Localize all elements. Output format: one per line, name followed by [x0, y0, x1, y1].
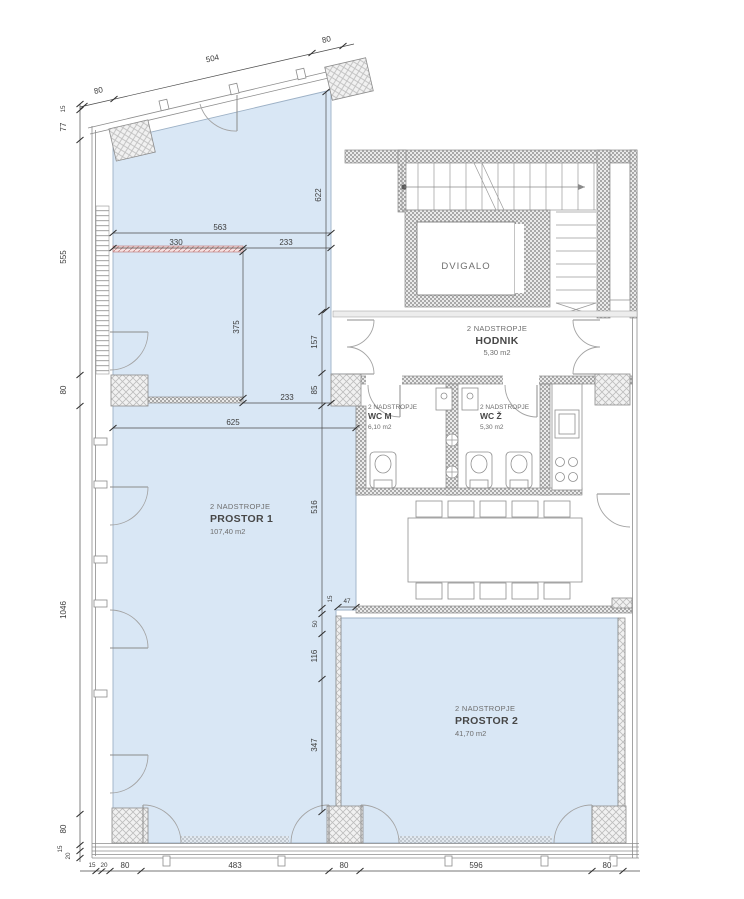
prostor2-name: PROSTOR 2 — [455, 715, 518, 727]
dim-625: 625 — [226, 418, 240, 427]
prostor2-floor: 2 NADSTROPJE — [455, 704, 515, 713]
dim-left-20: 20 — [65, 852, 72, 860]
left-wall-insulation — [96, 206, 109, 374]
wc-m-left-wall — [356, 406, 366, 495]
dim-top-80-right: 80 — [321, 34, 332, 45]
stairwell: DVIGALO — [333, 150, 637, 318]
prostor-divider-wall — [336, 616, 341, 808]
dim-left-15: 15 — [60, 105, 67, 113]
outer-right-wall-segment — [630, 150, 637, 318]
label-hodnik: 2 NADSTROPJE HODNIK 5,30 m2 — [467, 324, 527, 357]
dim-left-80b: 80 — [59, 824, 68, 833]
elevator: DVIGALO — [405, 210, 550, 307]
dim-116: 116 — [310, 649, 319, 662]
floor-plan-page: DVIGALO — [0, 0, 744, 899]
stair-right-wall — [597, 150, 610, 318]
dim-left-1046: 1046 — [59, 601, 68, 619]
dim-563: 563 — [213, 223, 227, 232]
dim-left-555: 555 — [59, 250, 68, 264]
upper-room-lower-wall — [145, 397, 243, 403]
dim-left-77: 77 — [59, 122, 68, 131]
hodnik-area: 5,30 m2 — [483, 348, 510, 357]
chair — [512, 583, 538, 599]
stair-top-wall — [345, 150, 637, 163]
meeting-table — [408, 501, 582, 599]
wc-z-area: 5,30 m2 — [480, 424, 504, 431]
dim-top-504: 504 — [205, 53, 221, 65]
dim-bottom-20: 20 — [100, 862, 108, 869]
dim-top-80-left: 80 — [93, 85, 104, 96]
prostor1-name: PROSTOR 1 — [210, 513, 273, 525]
prostor1-floor: 2 NADSTROPJE — [210, 502, 270, 511]
washbasin — [462, 388, 478, 410]
prostor2-right-wall — [618, 618, 625, 806]
dim-bottom-80b: 80 — [340, 861, 349, 870]
window-sill-band — [181, 836, 289, 843]
kitchen-counter — [552, 384, 582, 490]
dim-left-80a: 80 — [59, 385, 68, 394]
wc-z-name: WC Ž — [480, 410, 502, 421]
floor-plan-drawing: DVIGALO — [0, 0, 744, 899]
prostor2-area: 41,70 m2 — [455, 729, 486, 738]
door-kitchen-right — [597, 494, 630, 527]
wc-z-floor: 2 NADSTROPJE — [480, 404, 530, 411]
label-wc-m: 2 NADSTROPJE WC M 6,10 m2 — [368, 404, 418, 431]
dim-157: 157 — [310, 335, 319, 349]
double-door-corridor-right — [573, 320, 600, 374]
dim-622: 622 — [314, 188, 323, 202]
wc-m-name: WC M — [368, 411, 392, 421]
chair — [448, 583, 474, 599]
dim-516: 516 — [310, 500, 319, 514]
elevator-cab — [417, 222, 515, 295]
wc-z-right-wall — [540, 384, 550, 495]
wc-m-floor: 2 NADSTROPJE — [368, 404, 418, 411]
stair-treads-right — [556, 212, 596, 316]
door-wc-z — [505, 385, 537, 417]
dim-15-step: 15 — [327, 595, 334, 603]
chair — [544, 583, 570, 599]
pillar-bottom-right — [592, 806, 626, 843]
elevator-door-gap — [515, 224, 524, 293]
toilet — [466, 452, 492, 488]
prostor2-top-right-step — [612, 598, 632, 608]
chair — [416, 501, 442, 517]
dim-375: 375 — [232, 320, 241, 334]
dim-bottom-15: 15 — [88, 862, 96, 869]
dim-233a: 233 — [279, 238, 293, 247]
dim-bottom-483: 483 — [228, 861, 242, 870]
dim-bottom-596: 596 — [469, 861, 483, 870]
label-wc-z: 2 NADSTROPJE WC Ž 5,30 m2 — [480, 404, 530, 431]
prostor2-top-wall — [356, 606, 632, 613]
pillar-bottom-center — [327, 806, 363, 843]
chair — [448, 501, 474, 517]
wc-bottom-wall — [356, 488, 582, 495]
dim-50: 50 — [312, 620, 319, 628]
dim-85: 85 — [310, 385, 319, 394]
dim-347: 347 — [310, 738, 319, 752]
chair — [416, 583, 442, 599]
elevator-label: DVIGALO — [441, 261, 490, 272]
stair-treads-upper — [402, 163, 596, 210]
window-sill-band — [399, 836, 552, 843]
chair — [512, 501, 538, 517]
hodnik-floor: 2 NADSTROPJE — [467, 324, 527, 333]
prostor1-room — [113, 90, 356, 843]
chair — [544, 501, 570, 517]
washbasin — [436, 388, 452, 410]
dim-bottom-80c: 80 — [603, 861, 612, 870]
dim-330: 330 — [169, 238, 183, 247]
toilet — [370, 452, 396, 488]
corridor-top-wall — [333, 311, 637, 317]
wc-m-area: 6,10 m2 — [368, 424, 392, 431]
dim-47: 47 — [343, 598, 351, 605]
dim-233b: 233 — [280, 393, 294, 402]
shaft — [610, 163, 630, 300]
hodnik-name: HODNIK — [475, 335, 518, 347]
double-door-corridor-left — [347, 320, 374, 374]
dim-bottom-80a: 80 — [121, 861, 130, 870]
pillar-corridor-left — [331, 374, 361, 406]
stair-direction-arrow — [401, 184, 585, 190]
chair — [480, 501, 506, 517]
pillar-corridor-right — [595, 374, 630, 405]
pillar-top-right — [325, 58, 374, 101]
chair — [480, 583, 506, 599]
prostor1-area: 107,40 m2 — [210, 527, 245, 536]
toilet — [506, 452, 532, 488]
pillar-left-mid — [111, 375, 148, 406]
dim-left-15b: 15 — [57, 845, 64, 853]
